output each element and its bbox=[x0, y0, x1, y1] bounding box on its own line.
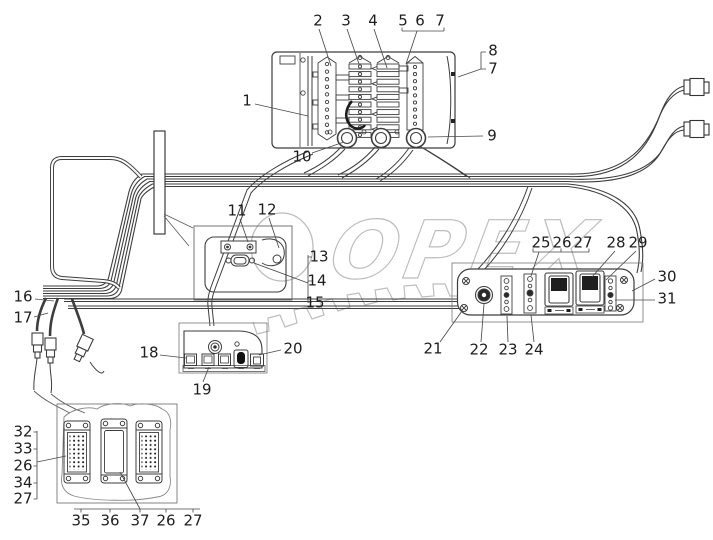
connector-tip bbox=[704, 82, 709, 93]
callout-10: 10 bbox=[292, 150, 311, 165]
connector-tip bbox=[704, 124, 709, 135]
callout-21: 21 bbox=[423, 342, 442, 357]
connector-collar bbox=[684, 122, 690, 136]
callout-4: 4 bbox=[368, 14, 378, 29]
callout-37: 37 bbox=[130, 514, 149, 529]
callout-17: 17 bbox=[13, 311, 32, 326]
callout-26a: 26 bbox=[552, 236, 571, 251]
callout-36: 36 bbox=[100, 514, 119, 529]
callout-9: 9 bbox=[487, 129, 497, 144]
callout-31: 31 bbox=[657, 292, 676, 307]
callout-16: 16 bbox=[13, 290, 32, 305]
connector-block-right bbox=[136, 421, 162, 483]
callout-34: 34 bbox=[13, 476, 32, 491]
indicator-strip-31 bbox=[605, 276, 616, 311]
callout-2: 2 bbox=[313, 14, 323, 29]
callout-35: 35 bbox=[71, 514, 90, 529]
junction-box bbox=[194, 226, 292, 300]
callout-8: 8 bbox=[488, 44, 498, 59]
callout-18: 18 bbox=[139, 346, 158, 361]
callout-22: 22 bbox=[469, 343, 488, 358]
connector-block-left bbox=[64, 421, 90, 483]
callout-24: 24 bbox=[524, 343, 543, 358]
callout-15: 15 bbox=[305, 296, 324, 311]
indicator-strip-24 bbox=[524, 274, 536, 313]
grommet-hole bbox=[273, 255, 281, 263]
callout-12: 12 bbox=[257, 203, 276, 218]
callout-29: 29 bbox=[628, 236, 647, 251]
callout-27a: 27 bbox=[573, 236, 592, 251]
callout-5: 5 bbox=[398, 14, 408, 29]
callout-26c: 26 bbox=[156, 514, 175, 529]
indicator-strip-23 bbox=[501, 276, 512, 314]
connector-body bbox=[690, 121, 704, 138]
parts-diagram: OPEX bbox=[0, 0, 713, 540]
callout-7: 7 bbox=[435, 14, 445, 29]
callout-28: 28 bbox=[606, 236, 625, 251]
harness-plugs bbox=[32, 298, 104, 413]
bracket-plate bbox=[221, 241, 256, 253]
watermark-o bbox=[251, 213, 313, 281]
callout-20: 20 bbox=[283, 342, 302, 357]
callout-6: 6 bbox=[415, 14, 425, 29]
callout-27b: 27 bbox=[13, 492, 32, 507]
callout-30: 30 bbox=[657, 270, 676, 285]
callout-26b: 26 bbox=[13, 459, 32, 474]
callout-3: 3 bbox=[341, 14, 351, 29]
callout-11: 11 bbox=[227, 204, 246, 219]
output-grommets bbox=[338, 129, 426, 148]
callout-7b: 7 bbox=[488, 62, 498, 77]
callout-25: 25 bbox=[531, 236, 550, 251]
dsub-connector bbox=[226, 255, 255, 266]
callout-32: 32 bbox=[13, 425, 32, 440]
connector-block-box bbox=[57, 404, 177, 503]
callout-14: 14 bbox=[307, 274, 326, 289]
connector-body bbox=[690, 79, 704, 96]
callout-1: 1 bbox=[242, 94, 252, 109]
diagram-canvas: OPEX bbox=[0, 0, 713, 540]
callout-27c: 27 bbox=[183, 514, 202, 529]
starter-button[interactable] bbox=[476, 287, 493, 304]
callout-13: 13 bbox=[309, 250, 328, 265]
control-panel bbox=[179, 323, 267, 373]
callout-19: 19 bbox=[192, 383, 211, 398]
fuse-box bbox=[272, 52, 455, 148]
connector-block-middle bbox=[101, 419, 127, 483]
rear-connectors bbox=[684, 79, 709, 138]
callout-23: 23 bbox=[498, 343, 517, 358]
connector-collar bbox=[684, 80, 690, 94]
callout-33: 33 bbox=[13, 442, 32, 457]
harness-clamp-bar bbox=[154, 131, 193, 246]
